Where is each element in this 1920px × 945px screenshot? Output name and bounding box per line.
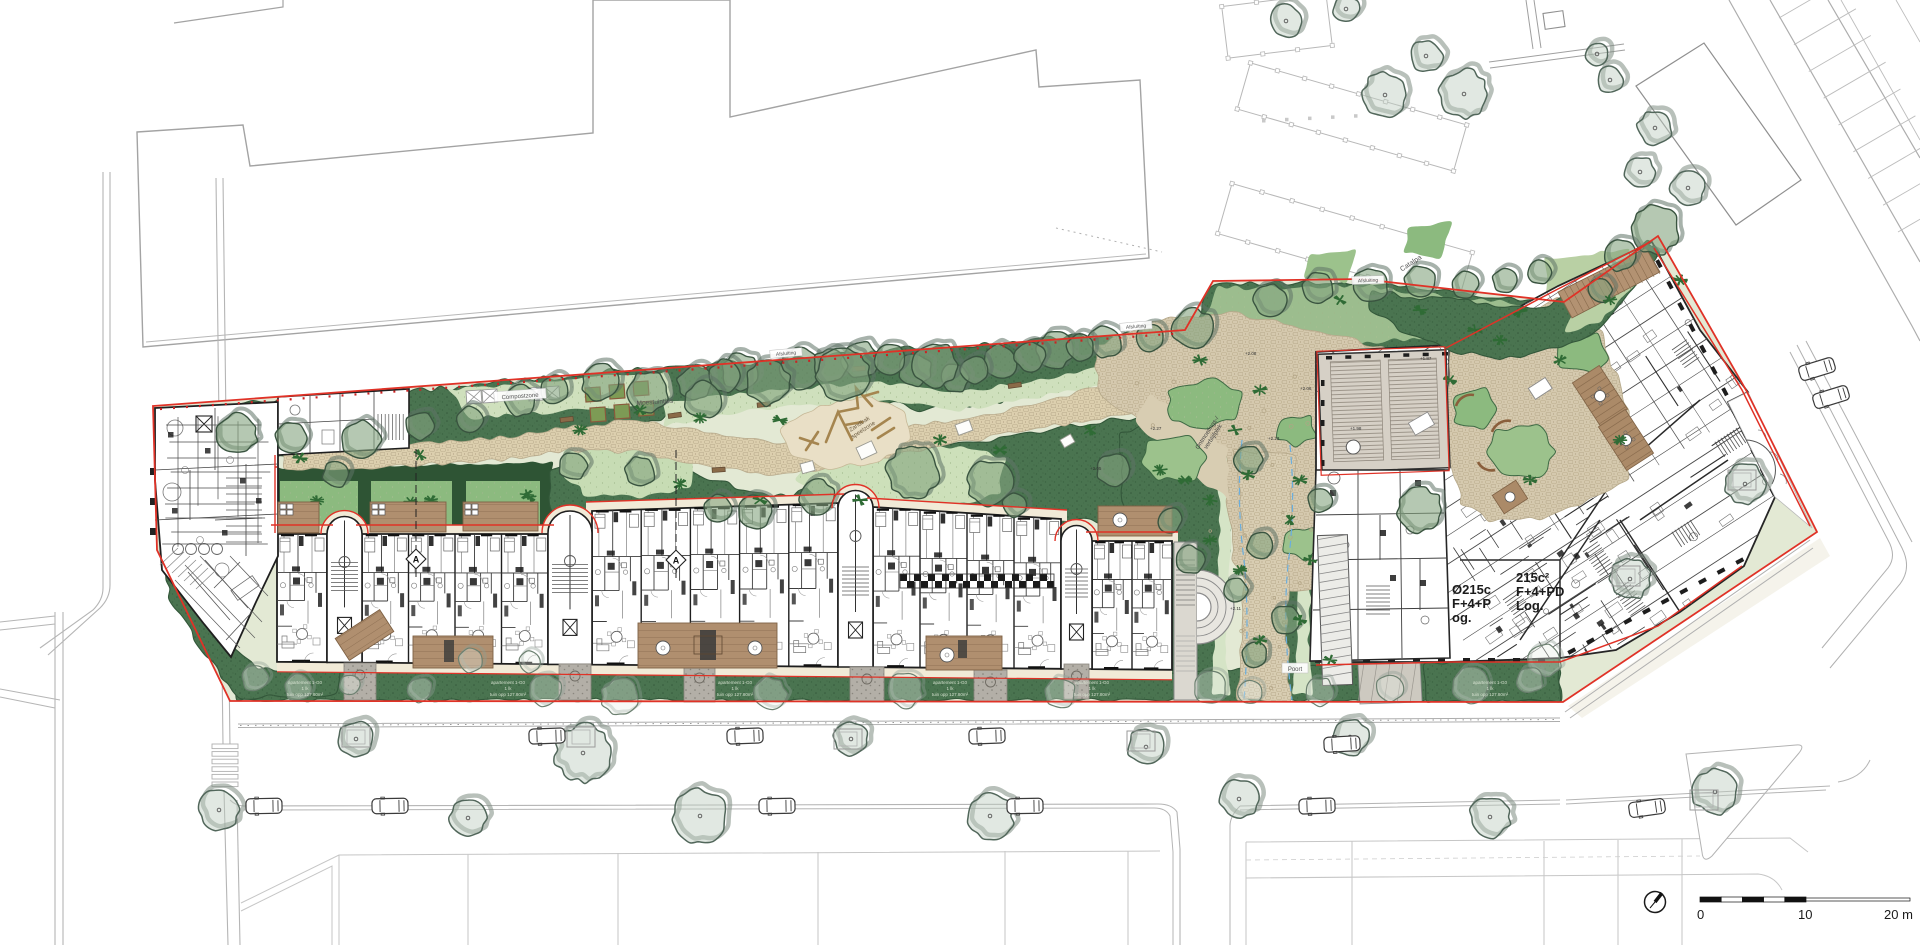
svg-text:+2.05: +2.05 [1090, 466, 1102, 471]
svg-text:1 lk: 1 lk [504, 686, 512, 691]
svg-text:1 lk: 1 lk [301, 686, 309, 691]
svg-text:1 lk: 1 lk [1486, 686, 1494, 691]
svg-text:Poort: Poort [1288, 667, 1303, 673]
svg-text:apartement 1-G0: apartement 1-G0 [718, 680, 753, 685]
svg-text:tuin opp 127.80m²: tuin opp 127.80m² [287, 692, 324, 697]
svg-text:apartement 1-G0: apartement 1-G0 [288, 680, 323, 685]
svg-text:10: 10 [1798, 907, 1812, 922]
svg-text:tuin opp 127.80m²: tuin opp 127.80m² [490, 692, 527, 697]
svg-text:tuin opp 127.80m²: tuin opp 127.80m² [717, 692, 754, 697]
svg-text:1 lk: 1 lk [1088, 686, 1096, 691]
svg-text:A: A [413, 555, 420, 565]
svg-text:1 lk: 1 lk [731, 686, 739, 691]
svg-text:+2.06: +2.06 [1300, 386, 1312, 391]
svg-text:+2.08: +2.08 [1245, 351, 1257, 356]
svg-text:og.: og. [1452, 610, 1472, 625]
svg-text:Afsluiting: Afsluiting [1358, 278, 1379, 285]
svg-text:tuin opp 127.80m²: tuin opp 127.80m² [1074, 692, 1111, 697]
svg-text:1 lk: 1 lk [946, 686, 954, 691]
svg-text:Log.: Log. [1516, 598, 1543, 613]
svg-text:+1.98: +1.98 [1350, 426, 1362, 431]
svg-text:apartement 1-G0: apartement 1-G0 [933, 680, 968, 685]
svg-text:+2.27: +2.27 [1150, 426, 1162, 431]
svg-text:215c²: 215c² [1516, 570, 1550, 585]
svg-text:apartement 1-G0: apartement 1-G0 [491, 680, 526, 685]
svg-text:+2.11: +2.11 [1230, 606, 1242, 611]
svg-text:A: A [673, 556, 680, 566]
svg-text:0: 0 [1697, 907, 1704, 922]
svg-text:tuin opp 127.80m²: tuin opp 127.80m² [1472, 692, 1509, 697]
svg-text:Ø215c: Ø215c [1452, 582, 1491, 597]
svg-text:apartement 1-G0: apartement 1-G0 [1075, 680, 1110, 685]
svg-text:+1.87: +1.87 [1420, 356, 1432, 361]
svg-text:F+4+PD: F+4+PD [1516, 584, 1564, 599]
svg-text:20 m: 20 m [1884, 907, 1913, 922]
svg-text:tuin opp 127.80m²: tuin opp 127.80m² [932, 692, 969, 697]
svg-text:apartement 1-G0: apartement 1-G0 [1473, 680, 1508, 685]
svg-text:+2.23: +2.23 [1268, 436, 1280, 441]
svg-text:F+4+P: F+4+P [1452, 596, 1491, 611]
